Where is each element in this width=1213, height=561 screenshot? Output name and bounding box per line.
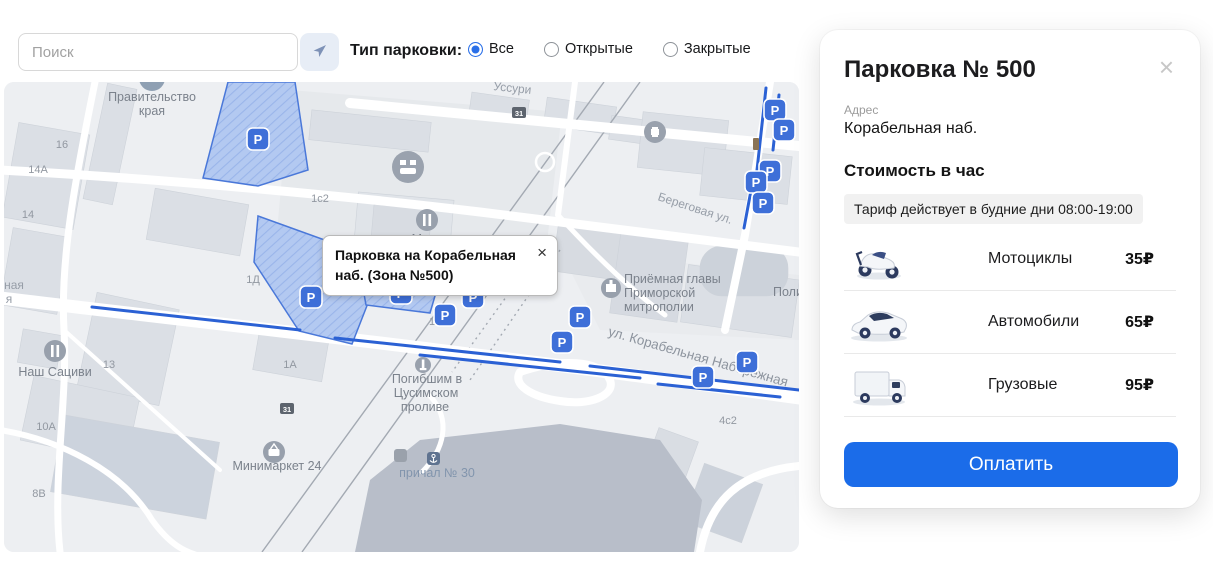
house-number: 1Д bbox=[246, 274, 260, 286]
vehicle-price: 35₽ bbox=[1125, 249, 1154, 269]
parking-marker[interactable]: P bbox=[773, 119, 795, 141]
street-label: ная bbox=[4, 278, 24, 292]
attraction-icon bbox=[392, 151, 424, 183]
price-row-trucks: Грузовые 95₽ bbox=[844, 354, 1176, 417]
parking-type-radio-group: Все Открытые Закрытые bbox=[468, 41, 751, 57]
road-sign-badge-label: 31 bbox=[515, 109, 523, 118]
price-row-cars: Автомобили 65₽ bbox=[844, 291, 1176, 354]
svg-text:P: P bbox=[307, 290, 316, 305]
poi-label: Цусимском bbox=[394, 386, 459, 400]
parking-marker[interactable]: P bbox=[569, 306, 591, 328]
vehicle-name: Автомобили bbox=[936, 313, 1125, 331]
poi-label: Минимаркет 24 bbox=[232, 459, 321, 473]
radio-dot-icon bbox=[468, 42, 483, 57]
pay-button[interactable]: Оплатить bbox=[844, 442, 1178, 487]
map-popup-text: Парковка на Корабельная наб. (Зона №500) bbox=[335, 247, 516, 283]
parking-marker[interactable]: P bbox=[736, 351, 758, 373]
house-number: 4с2 bbox=[719, 415, 737, 427]
parking-marker[interactable]: P bbox=[551, 331, 573, 353]
parking-type-label: Тип парковки: bbox=[350, 42, 462, 60]
map[interactable]: УссуриБереговая ул.ул. Корабельная Набер… bbox=[4, 82, 799, 552]
house-number: 13 bbox=[103, 359, 115, 371]
street-label: я bbox=[6, 292, 13, 306]
map-popup: Парковка на Корабельная наб. (Зона №500)… bbox=[322, 235, 558, 296]
car-icon bbox=[844, 298, 914, 346]
navigation-arrow-icon bbox=[310, 41, 330, 64]
radio-closed[interactable]: Закрытые bbox=[663, 41, 751, 57]
house-number: 1А bbox=[283, 359, 297, 371]
panel-close-icon[interactable]: × bbox=[1159, 54, 1174, 80]
poi-label: Наш Сациви bbox=[18, 365, 91, 379]
parking-info-panel: Парковка № 500 × Адрес Корабельная наб. … bbox=[820, 30, 1200, 508]
radio-dot-icon bbox=[544, 42, 559, 57]
poi-label: Погибшим в bbox=[392, 372, 463, 386]
panel-title: Парковка № 500 bbox=[844, 56, 1176, 84]
radio-dot-icon bbox=[663, 42, 678, 57]
svg-text:P: P bbox=[759, 196, 768, 211]
svg-text:P: P bbox=[254, 132, 263, 147]
building-poi-icon bbox=[394, 449, 407, 462]
restaurant-icon bbox=[44, 340, 66, 362]
svg-text:P: P bbox=[558, 335, 567, 350]
svg-text:P: P bbox=[743, 355, 752, 370]
parking-marker[interactable]: P bbox=[752, 192, 774, 214]
address-value: Корабельная наб. bbox=[844, 120, 1176, 138]
svg-text:P: P bbox=[771, 103, 780, 118]
parking-marker[interactable]: P bbox=[300, 286, 322, 308]
parking-marker[interactable]: P bbox=[764, 99, 786, 121]
geolocate-button[interactable] bbox=[300, 33, 339, 71]
poi-label: митрополии bbox=[624, 300, 694, 314]
search-input[interactable] bbox=[18, 33, 298, 71]
vehicle-name: Грузовые bbox=[936, 376, 1125, 394]
popup-close-icon[interactable]: × bbox=[537, 244, 547, 261]
parking-marker[interactable]: P bbox=[247, 128, 269, 150]
svg-text:P: P bbox=[576, 310, 585, 325]
house-number: 14 bbox=[22, 209, 34, 221]
house-number: 1с2 bbox=[311, 193, 329, 205]
poi-label: Приморской bbox=[624, 286, 695, 300]
vehicle-price: 65₽ bbox=[1125, 312, 1154, 332]
poi-label: Поли bbox=[773, 285, 799, 299]
svg-text:P: P bbox=[441, 308, 450, 323]
price-rows: Мотоциклы 35₽ Автомобили 65₽ bbox=[844, 228, 1176, 417]
price-section-title: Стоимость в час bbox=[844, 161, 1176, 181]
svg-text:P: P bbox=[780, 123, 789, 138]
poi-label: проливе bbox=[401, 400, 449, 414]
road-sign-badge-label: 31 bbox=[283, 405, 291, 414]
poi-label: причал № 30 bbox=[399, 466, 475, 480]
house-number: 8В bbox=[32, 488, 45, 500]
restaurant-icon bbox=[416, 209, 438, 231]
tariff-note: Тариф действует в будние дни 08:00-19:00 bbox=[844, 194, 1143, 224]
parking-marker[interactable]: P bbox=[434, 304, 456, 326]
svg-text:P: P bbox=[699, 370, 708, 385]
radio-open[interactable]: Открытые bbox=[544, 41, 633, 57]
traffic-light-icon bbox=[753, 138, 759, 150]
scooter-icon bbox=[844, 235, 914, 283]
house-number: 14А bbox=[28, 164, 48, 176]
poi-label: края bbox=[139, 104, 165, 118]
parking-marker[interactable]: P bbox=[745, 171, 767, 193]
svg-text:P: P bbox=[752, 175, 761, 190]
house-number: 10А bbox=[36, 421, 56, 433]
truck-icon bbox=[844, 361, 914, 409]
poi-label: Правительство bbox=[108, 90, 196, 104]
house-number: 16 bbox=[56, 139, 68, 151]
price-row-motorcycles: Мотоциклы 35₽ bbox=[844, 228, 1176, 291]
radio-all[interactable]: Все bbox=[468, 41, 514, 57]
vehicle-name: Мотоциклы bbox=[936, 250, 1125, 268]
poi-label: Приёмная главы bbox=[624, 272, 721, 286]
vehicle-price: 95₽ bbox=[1125, 375, 1154, 395]
address-label: Адрес bbox=[844, 103, 1176, 117]
parking-marker[interactable]: P bbox=[692, 366, 714, 388]
